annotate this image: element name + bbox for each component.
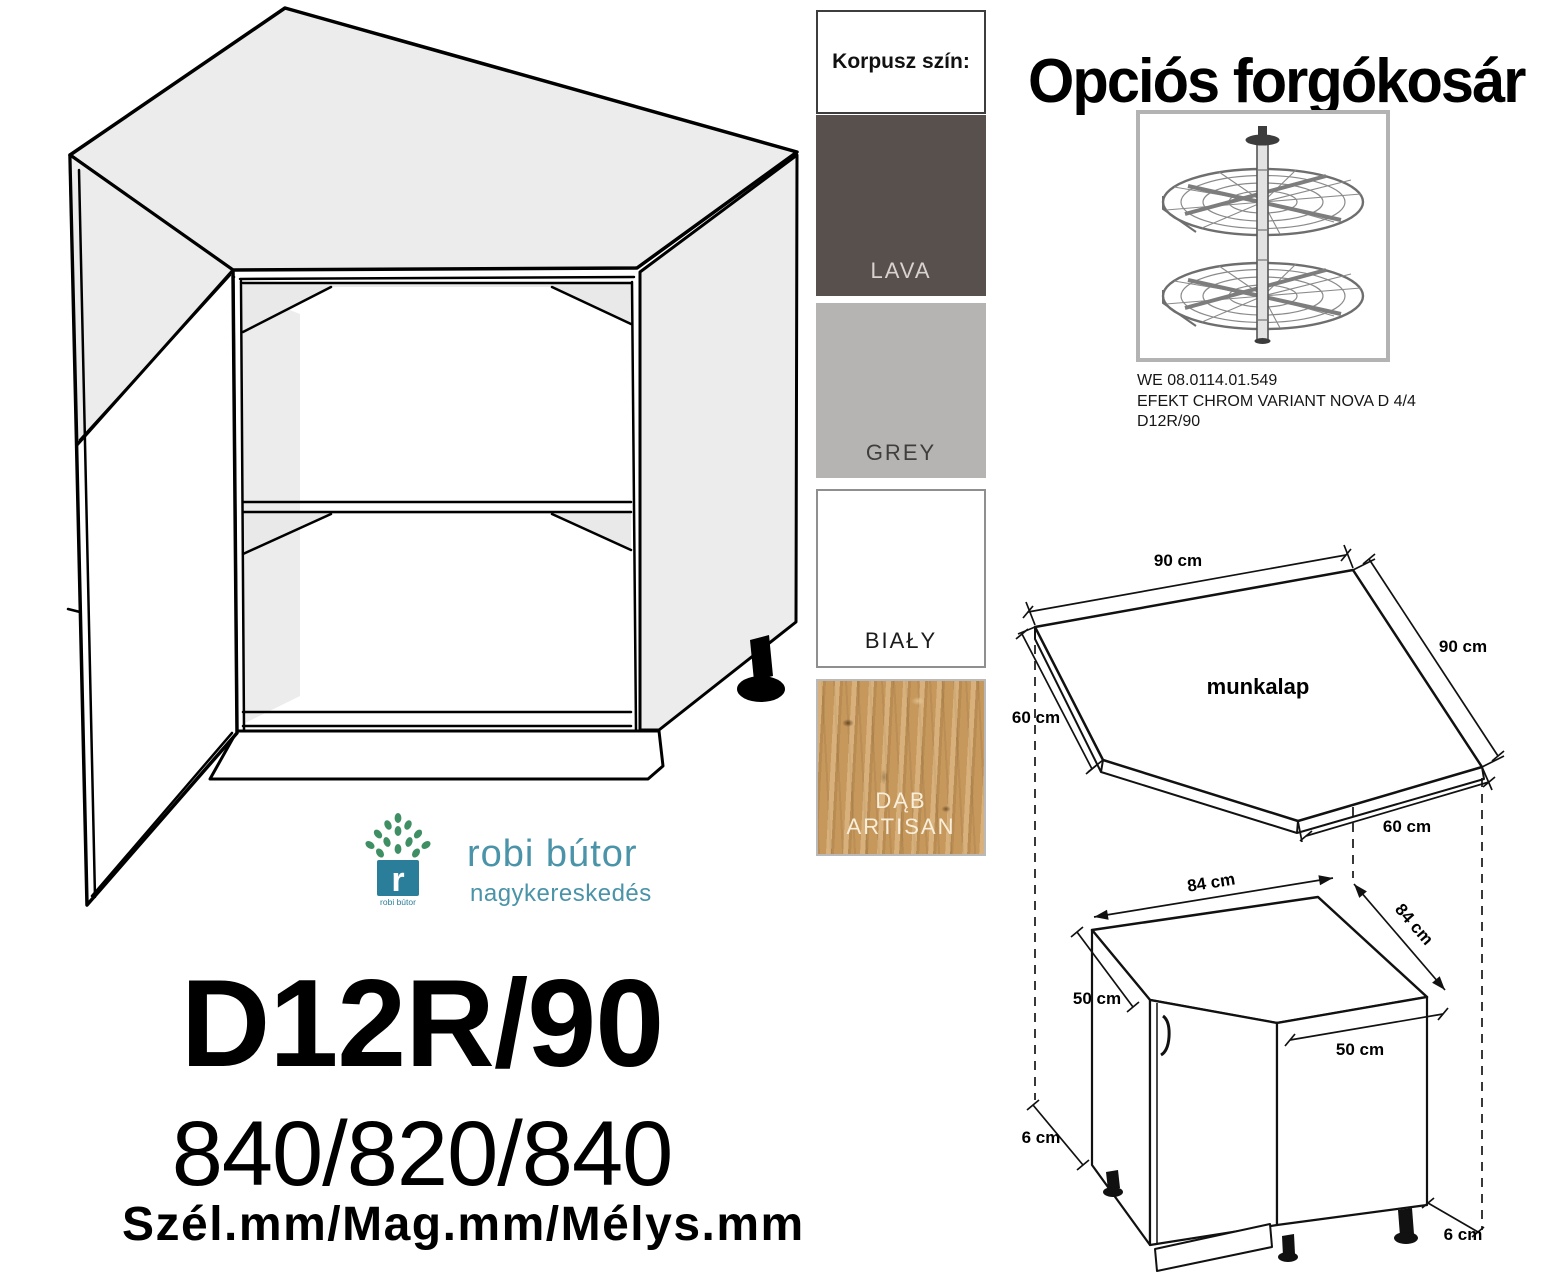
cabinet-dim-plinth-right: 6 cm [1444, 1225, 1483, 1244]
worktop-dim-top: 90 cm [1154, 551, 1202, 570]
robi-butor-logo-icon: r robi bútor [360, 812, 460, 907]
worktop-dim-left: 60 cm [1012, 708, 1060, 727]
cabinet-dim-depth: 84 cm [1391, 900, 1437, 949]
svg-text:r: r [391, 861, 404, 899]
worktop-label: munkalap [1207, 674, 1310, 699]
cabinet-dim-front: 50 cm [1336, 1040, 1384, 1059]
logo-subtitle-text: nagykereskedés [470, 880, 652, 908]
cabinet-dim-plinth-left: 6 cm [1022, 1128, 1061, 1147]
logo-icon-caption: robi bútor [380, 897, 416, 907]
product-spec-sheet: Korpusz szín: LAVA GREY BIAŁY DĄB ARTISA… [0, 0, 1546, 1272]
worktop-dim-right: 90 cm [1439, 637, 1487, 656]
product-dimension-units: Szél.mm/Mag.mm/Mélys.mm [122, 1201, 722, 1249]
product-code: D12R/90 [122, 962, 722, 1086]
tree-icon [364, 813, 432, 859]
cabinet-dim-left: 50 cm [1073, 989, 1121, 1008]
product-dimensions: 840/820/840 [122, 1108, 722, 1200]
logo-brand-text: robi bútor [467, 833, 638, 876]
worktop-dim-bottom: 60 cm [1383, 817, 1431, 836]
cabinet-dim-width: 84 cm [1186, 869, 1237, 895]
